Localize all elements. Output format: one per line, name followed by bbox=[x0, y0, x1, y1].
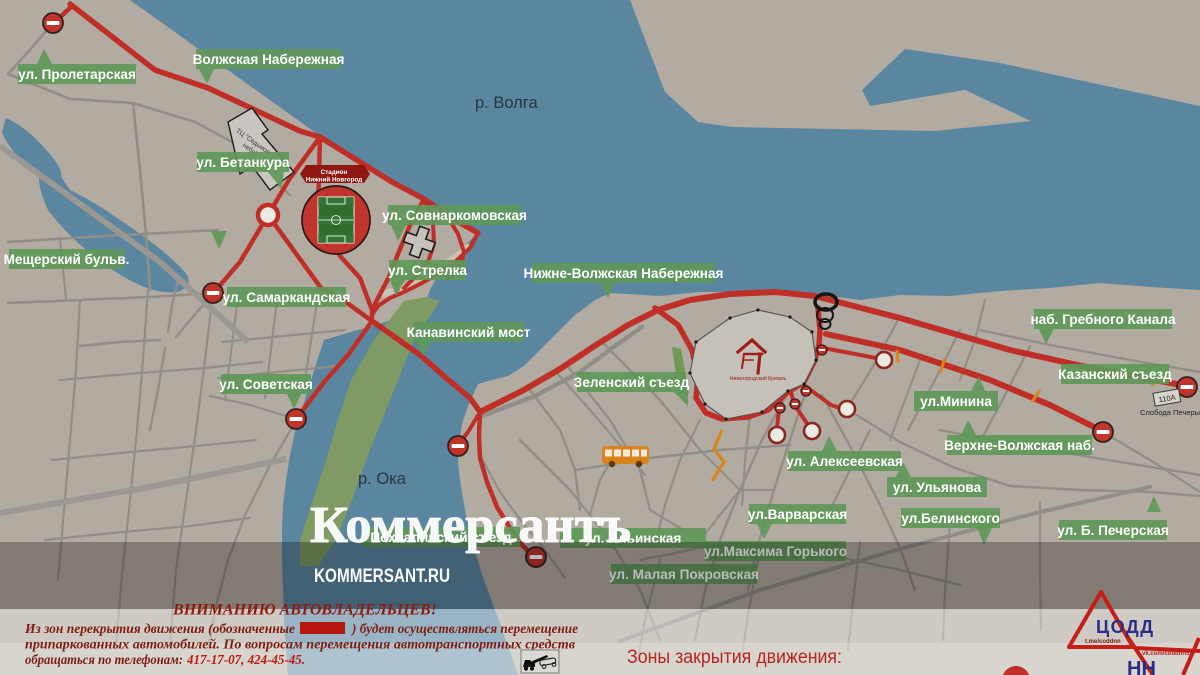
svg-text:ул. Алексеевская: ул. Алексеевская bbox=[786, 454, 903, 469]
svg-text:НН: НН bbox=[1127, 658, 1156, 675]
svg-text:417-17-07, 424-45-45.: 417-17-07, 424-45-45. bbox=[186, 653, 305, 668]
svg-text:Нижне-Волжская Набережная: Нижне-Волжская Набережная bbox=[524, 266, 724, 281]
svg-text:ул. Б. Печерская: ул. Б. Печерская bbox=[1057, 523, 1169, 538]
svg-text:Нижний Новгород: Нижний Новгород bbox=[306, 176, 362, 184]
svg-text:Слобода Печеры: Слобода Печеры bbox=[1140, 408, 1200, 417]
svg-text:ВНИМАНИЮ АВТОВЛАДЕЛЬЦЕВ!: ВНИМАНИЮ АВТОВЛАДЕЛЬЦЕВ! bbox=[172, 602, 437, 619]
svg-text:ул. Бетанкура: ул. Бетанкура bbox=[196, 155, 290, 170]
svg-text:ул. Советская: ул. Советская bbox=[219, 377, 313, 392]
svg-text:Из зон перекрытия движения (об: Из зон перекрытия движения (обозначенные bbox=[24, 622, 295, 637]
svg-text:ЦОДД: ЦОДД bbox=[1096, 617, 1155, 637]
svg-text:Канавинский мост: Канавинский мост bbox=[407, 325, 531, 340]
svg-text:ул. Совнаркомовская: ул. Совнаркомовская bbox=[382, 208, 527, 223]
svg-text:ул.Белинского: ул.Белинского bbox=[901, 511, 1000, 526]
svg-text:Мещерский бульв.: Мещерский бульв. bbox=[4, 252, 130, 267]
svg-text:обращаться по телефонам:: обращаться по телефонам: bbox=[25, 653, 183, 668]
svg-text:KOMMERSANT.RU: KOMMERSANT.RU bbox=[314, 566, 450, 587]
svg-text:ул. Пролетарская: ул. Пролетарская bbox=[18, 67, 136, 82]
svg-text:ул. Самаркандская: ул. Самаркандская bbox=[223, 290, 351, 305]
svg-text:ул.Минина: ул.Минина bbox=[920, 394, 992, 409]
svg-text:Казанский съезд: Казанский съезд bbox=[1058, 367, 1172, 382]
svg-text:Коммерсантъ: Коммерсантъ bbox=[310, 497, 631, 554]
svg-text:Волжская Набережная: Волжская Набережная bbox=[193, 52, 345, 67]
svg-text:припаркованных автомобилей. По: припаркованных автомобилей. По вопросам … bbox=[25, 638, 576, 653]
svg-text:ул.Варварская: ул.Варварская bbox=[748, 507, 847, 522]
svg-text:р. Волга: р. Волга bbox=[475, 94, 538, 112]
svg-text:) будет осуществляться перемещ: ) будет осуществляться перемещение bbox=[350, 622, 578, 637]
svg-text:Нижегородский Кремль: Нижегородский Кремль bbox=[730, 375, 787, 382]
svg-text:Стадион: Стадион bbox=[321, 169, 348, 176]
svg-text:t.me/coddnn: t.me/coddnn bbox=[1085, 639, 1121, 645]
svg-text:р. Ока: р. Ока bbox=[358, 470, 407, 488]
svg-text:Зеленский съезд: Зеленский съезд bbox=[574, 375, 690, 390]
svg-text:vk.com/coddnn52: vk.com/coddnn52 bbox=[1142, 651, 1193, 657]
svg-text:Зоны закрытия движения:: Зоны закрытия движения: bbox=[627, 647, 842, 668]
svg-text:ул. Стрелка: ул. Стрелка bbox=[388, 263, 467, 278]
svg-text:ул. Ульянова: ул. Ульянова bbox=[893, 480, 982, 495]
svg-text:наб. Гребного Канала: наб. Гребного Канала bbox=[1030, 312, 1175, 327]
svg-text:Верхне-Волжская наб.: Верхне-Волжская наб. bbox=[944, 438, 1095, 453]
